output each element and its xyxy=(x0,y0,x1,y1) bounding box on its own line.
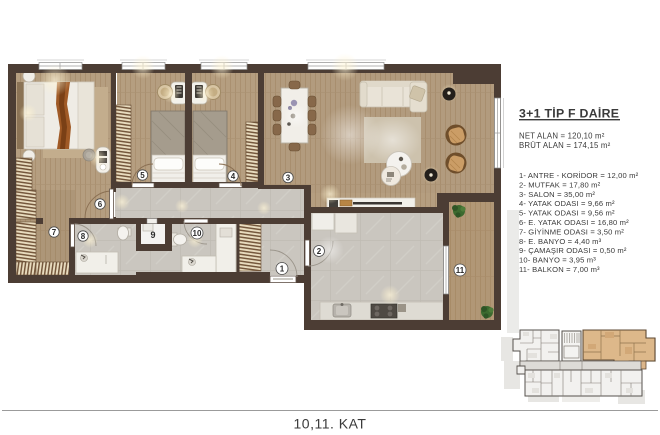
svg-text:2- MUTFAK = 17,80 m²: 2- MUTFAK = 17,80 m² xyxy=(519,180,601,189)
svg-text:10: 10 xyxy=(193,229,202,238)
svg-text:NET ALAN = 120,10 m²: NET ALAN = 120,10 m² xyxy=(519,132,605,141)
svg-text:2: 2 xyxy=(317,247,322,256)
svg-text:1- ANTRE - KORİDOR = 12,00 m²: 1- ANTRE - KORİDOR = 12,00 m² xyxy=(519,171,639,180)
svg-text:11: 11 xyxy=(456,266,465,275)
svg-text:8: 8 xyxy=(81,232,86,241)
svg-text:9: 9 xyxy=(150,230,155,240)
svg-text:3- SALON = 35,00 m²: 3- SALON = 35,00 m² xyxy=(519,190,595,199)
svg-text:7: 7 xyxy=(52,228,57,237)
svg-text:10- BANYO = 3,95 m³: 10- BANYO = 3,95 m³ xyxy=(519,256,596,265)
svg-text:5: 5 xyxy=(140,171,145,180)
svg-text:11- BALKON = 7,00 m³: 11- BALKON = 7,00 m³ xyxy=(519,265,600,274)
svg-text:3+1 TİP F DAİRE: 3+1 TİP F DAİRE xyxy=(519,106,619,121)
svg-text:4: 4 xyxy=(231,172,236,181)
svg-text:6: 6 xyxy=(98,200,103,209)
svg-text:6- E. YATAK ODASI = 16,80 m²: 6- E. YATAK ODASI = 16,80 m² xyxy=(519,218,629,227)
svg-text:7- GİYİNME ODASI = 3,50 m²: 7- GİYİNME ODASI = 3,50 m² xyxy=(519,227,624,236)
svg-text:3: 3 xyxy=(286,174,291,183)
svg-text:BRÜT ALAN = 174,15 m²: BRÜT ALAN = 174,15 m² xyxy=(519,141,611,150)
svg-text:4- YATAK ODASI = 9,66 m²: 4- YATAK ODASI = 9,66 m² xyxy=(519,199,615,208)
svg-text:5- YATAK ODASI = 9,56 m²: 5- YATAK ODASI = 9,56 m² xyxy=(519,209,615,218)
svg-text:8- E. BANYO = 4,40 m³: 8- E. BANYO = 4,40 m³ xyxy=(519,237,602,246)
svg-text:1: 1 xyxy=(280,265,285,274)
svg-text:10,11. KAT: 10,11. KAT xyxy=(294,416,367,432)
svg-text:9- ÇAMAŞIR ODASI = 0,50 m²: 9- ÇAMAŞIR ODASI = 0,50 m² xyxy=(519,246,627,255)
